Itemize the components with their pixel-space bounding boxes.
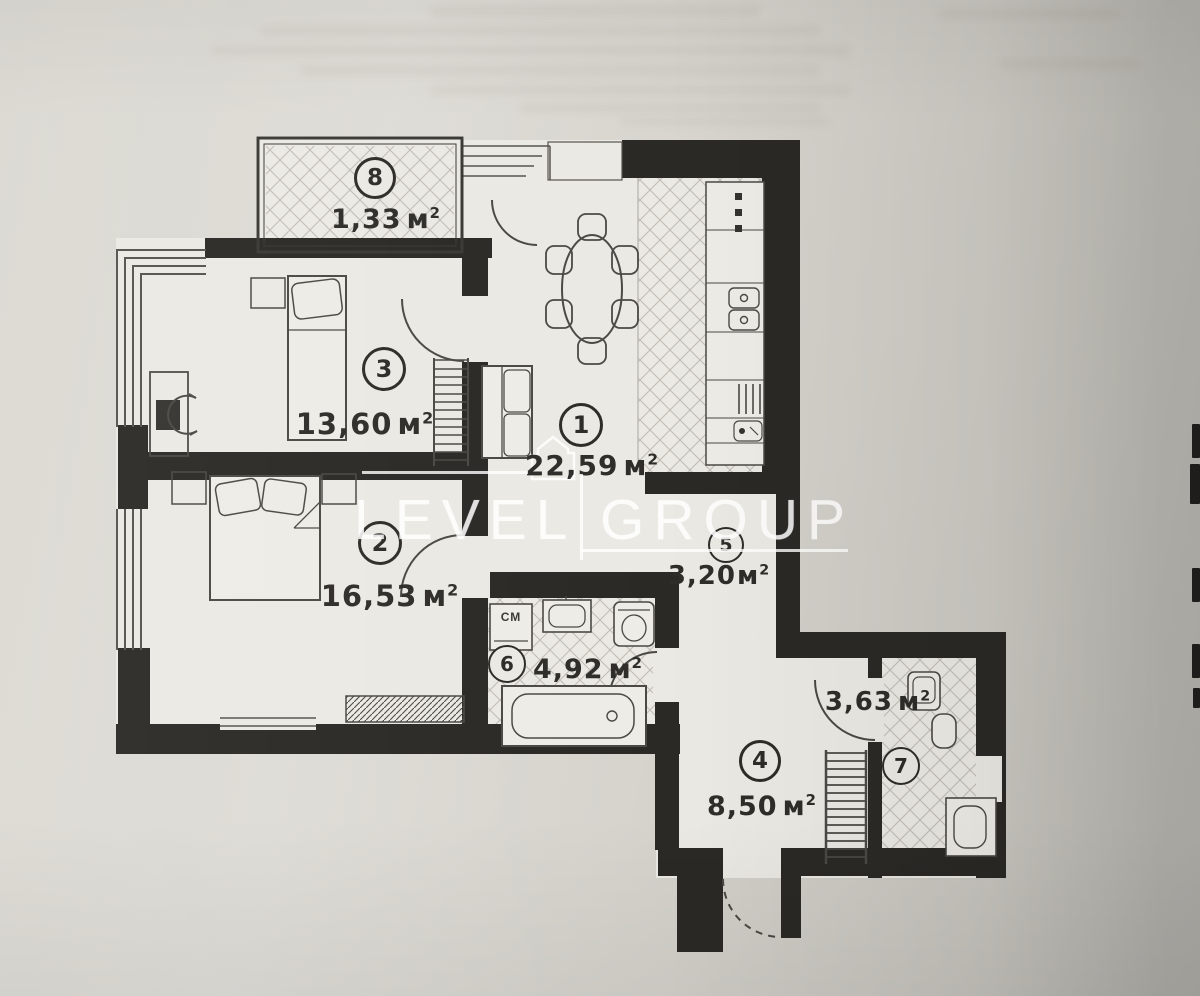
room-1-area-value: 22,59 — [525, 449, 619, 482]
radiator — [346, 696, 464, 722]
room-1-badge: 1 — [559, 403, 603, 447]
area-unit: м2 — [737, 561, 770, 591]
watermark-top-line — [362, 471, 528, 474]
area-unit: м2 — [898, 687, 931, 717]
wc-toilet — [946, 798, 996, 856]
area-unit: м2 — [783, 791, 817, 822]
room-3-area-label: 13,60м2 — [296, 407, 435, 441]
area-unit: м2 — [609, 654, 643, 685]
bedroom-window — [220, 714, 316, 730]
area-unit: м2 — [623, 449, 659, 482]
watermark-bottom-line — [580, 549, 848, 552]
double-bed — [210, 476, 320, 600]
room-3-badge: 3 — [362, 347, 406, 391]
room-4-badge: 4 — [739, 740, 781, 782]
toilet — [614, 602, 654, 646]
water-heater — [932, 714, 956, 748]
cooktop-dots — [735, 193, 742, 232]
room-4-area-label: 8,50м2 — [707, 791, 817, 822]
room-6-badge: 6 — [488, 645, 526, 683]
room-7-badge: 7 — [882, 747, 920, 785]
room-6-area-value: 4,92 — [533, 654, 604, 685]
room-3-number: 3 — [376, 355, 393, 383]
room-7-number: 7 — [894, 754, 908, 778]
bathtub — [502, 686, 646, 746]
room-1-number: 1 — [573, 411, 590, 439]
room-1-area-label: 22,59м2 — [525, 449, 659, 482]
washing-machine-label: СМ — [494, 610, 528, 624]
room-3-area-value: 13,60 — [296, 407, 393, 441]
watermark-brand-right: GROUP — [600, 487, 854, 553]
room-8-area-label: 1,33м2 — [331, 204, 441, 235]
room-7-area-value: 3,63 — [825, 687, 893, 717]
entrance-door-arc — [723, 879, 781, 937]
area-unit: м2 — [407, 204, 441, 235]
room-5-area-label: 3,20м2 — [668, 561, 770, 591]
room-5-area-value: 3,20 — [668, 561, 736, 591]
room-8-number: 8 — [367, 165, 383, 191]
kitchen-counter — [706, 182, 764, 465]
watermark-brand-left: LEVEL — [354, 487, 576, 553]
area-unit: м2 — [397, 407, 434, 441]
room-8-area-value: 1,33 — [331, 204, 402, 235]
area-unit: м2 — [422, 579, 459, 613]
floor-plan-photo: 1 2 3 4 5 6 7 8 22,59м2 16,53м2 13,60м2 … — [0, 0, 1200, 996]
room-4-area-value: 8,50 — [707, 791, 778, 822]
watermark-divider — [580, 474, 583, 560]
room-2-area-label: 16,53м2 — [321, 579, 460, 613]
sofa — [482, 366, 532, 458]
room-2-area-value: 16,53 — [321, 579, 418, 613]
room-4-number: 4 — [752, 748, 768, 774]
room-8-badge: 8 — [354, 157, 396, 199]
room-6-area-label: 4,92м2 — [533, 654, 643, 685]
bathroom-sink — [543, 596, 591, 632]
room-6-number: 6 — [500, 652, 514, 676]
room-7-area-label: 3,63м2 — [825, 687, 931, 717]
